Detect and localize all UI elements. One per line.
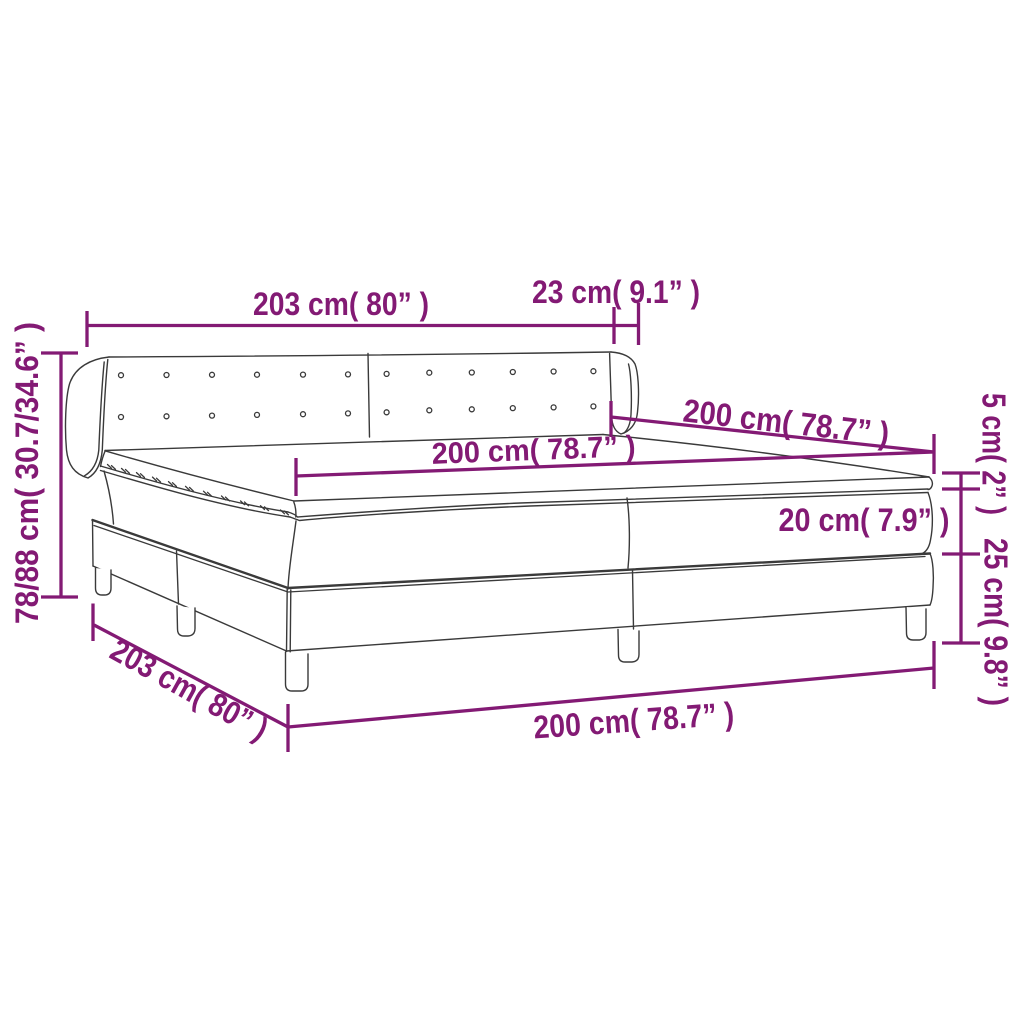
svg-text:5 cm( 2” ): 5 cm( 2” ) [976, 393, 1013, 515]
svg-text:25 cm( 9.8” ): 25 cm( 9.8” ) [978, 538, 1015, 706]
svg-text:203 cm( 80” ): 203 cm( 80” ) [253, 286, 429, 322]
svg-text:20 cm( 7.9” ): 20 cm( 7.9” ) [779, 502, 950, 538]
svg-text:23 cm( 9.1” ): 23 cm( 9.1” ) [532, 274, 700, 310]
svg-text:78/88 cm( 30.7/34.6” ): 78/88 cm( 30.7/34.6” ) [9, 322, 45, 624]
